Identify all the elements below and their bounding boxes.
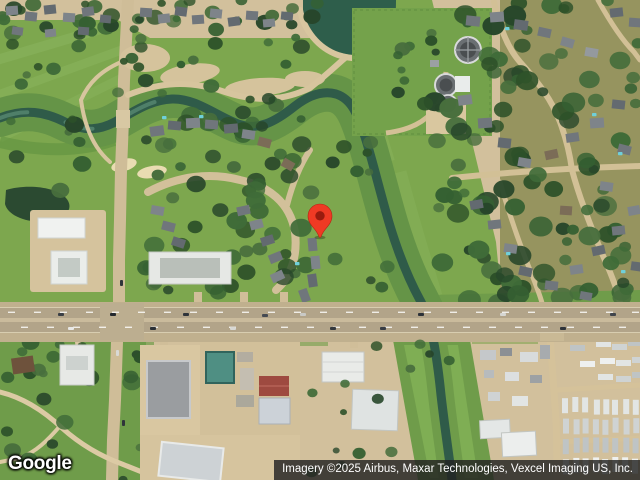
house-roof <box>6 6 19 16</box>
house-roof <box>498 137 512 148</box>
house-roof <box>192 15 205 25</box>
house-roof <box>513 19 528 31</box>
house-roof <box>612 225 626 235</box>
house-roof <box>599 181 613 192</box>
house-roof <box>205 120 219 130</box>
pool <box>199 115 204 118</box>
house-roof <box>545 280 559 290</box>
house-roof <box>590 118 605 129</box>
car <box>262 314 268 317</box>
house-roof <box>569 264 583 275</box>
car <box>183 313 189 316</box>
house-roof <box>227 16 240 27</box>
house-roof <box>241 129 255 140</box>
pool <box>621 270 626 273</box>
house-roof <box>307 238 317 252</box>
pool <box>618 152 623 155</box>
house-roof <box>45 28 57 37</box>
car <box>500 313 506 316</box>
house-roof <box>100 14 112 23</box>
google-logo[interactable]: Google <box>8 453 72 475</box>
water-treatment-plant <box>352 8 492 136</box>
satellite-map[interactable] <box>0 0 640 480</box>
house-roof <box>310 256 320 270</box>
house-roof <box>174 6 187 17</box>
house-roof <box>629 18 640 28</box>
car <box>610 313 616 316</box>
house-roof <box>11 26 23 35</box>
house-roof <box>263 18 276 27</box>
house-roof <box>63 13 76 23</box>
car <box>330 327 336 330</box>
car <box>120 280 123 286</box>
house-roof <box>78 27 90 36</box>
house-roof <box>168 120 182 130</box>
house-roof <box>490 12 505 23</box>
house-roof <box>478 118 493 129</box>
house-roof <box>560 206 573 216</box>
house-roof <box>186 118 201 129</box>
house-roof <box>457 94 472 106</box>
car <box>300 313 306 316</box>
house-roof <box>44 4 57 14</box>
pool <box>295 262 300 265</box>
car <box>116 350 119 356</box>
car <box>58 313 64 316</box>
car <box>560 327 566 330</box>
house-roof <box>466 15 481 26</box>
attribution-bar: Imagery ©2025 Airbus, Maxar Technologies… <box>274 460 640 480</box>
house-roof <box>281 11 294 20</box>
car <box>418 313 424 316</box>
pool <box>592 113 597 116</box>
house-roof <box>246 11 259 21</box>
pool <box>505 27 510 30</box>
car <box>110 313 116 316</box>
car <box>230 327 236 330</box>
map-viewport: Google Imagery ©2025 Airbus, Maxar Techn… <box>0 0 640 480</box>
house-roof <box>140 8 153 18</box>
house-roof <box>503 243 517 254</box>
pool <box>162 116 167 119</box>
house-roof <box>488 219 502 229</box>
house-roof <box>158 13 171 23</box>
house-roof <box>25 11 38 21</box>
house-roof <box>81 6 94 17</box>
house-roof <box>307 273 318 287</box>
pool <box>506 252 511 255</box>
car <box>68 327 74 330</box>
car <box>380 327 386 330</box>
house-roof <box>565 132 579 143</box>
house-roof <box>610 7 624 17</box>
house-roof <box>630 261 640 272</box>
house-roof <box>224 123 239 133</box>
house-roof <box>149 125 164 137</box>
car <box>150 327 156 330</box>
house-roof <box>612 99 626 109</box>
car <box>122 420 125 426</box>
house-roof <box>210 8 223 18</box>
